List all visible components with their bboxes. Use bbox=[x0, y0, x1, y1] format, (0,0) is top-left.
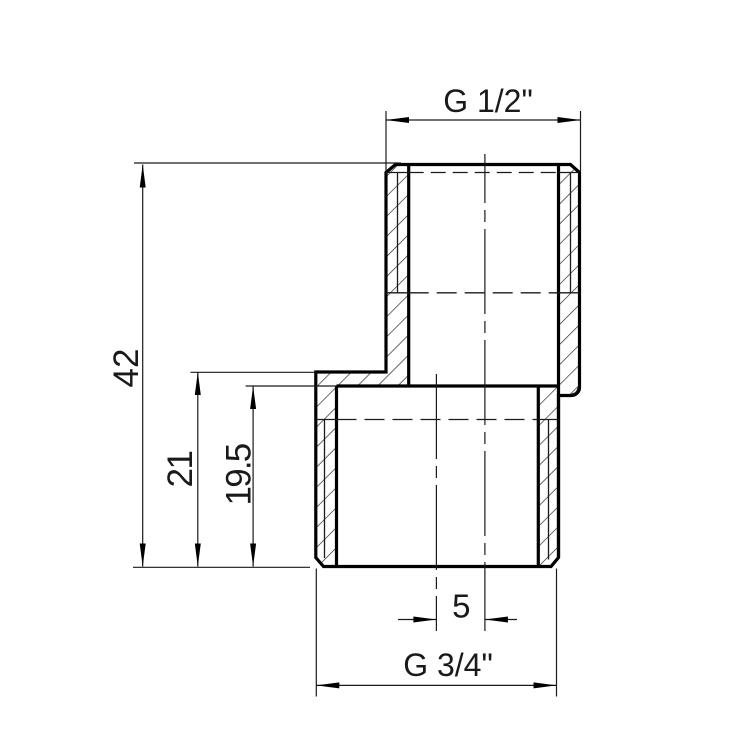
svg-text:19.5: 19.5 bbox=[219, 444, 258, 505]
svg-text:G 3/4": G 3/4" bbox=[403, 647, 493, 683]
svg-text:5: 5 bbox=[452, 588, 470, 625]
svg-text:42: 42 bbox=[107, 349, 146, 388]
svg-text:21: 21 bbox=[161, 452, 200, 488]
svg-text:G 1/2": G 1/2" bbox=[443, 83, 533, 119]
